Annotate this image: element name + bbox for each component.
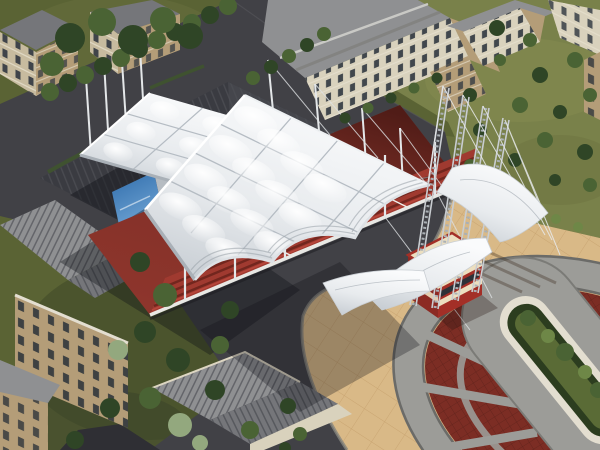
- architectural-render: [0, 0, 600, 450]
- render-canvas: [0, 0, 600, 450]
